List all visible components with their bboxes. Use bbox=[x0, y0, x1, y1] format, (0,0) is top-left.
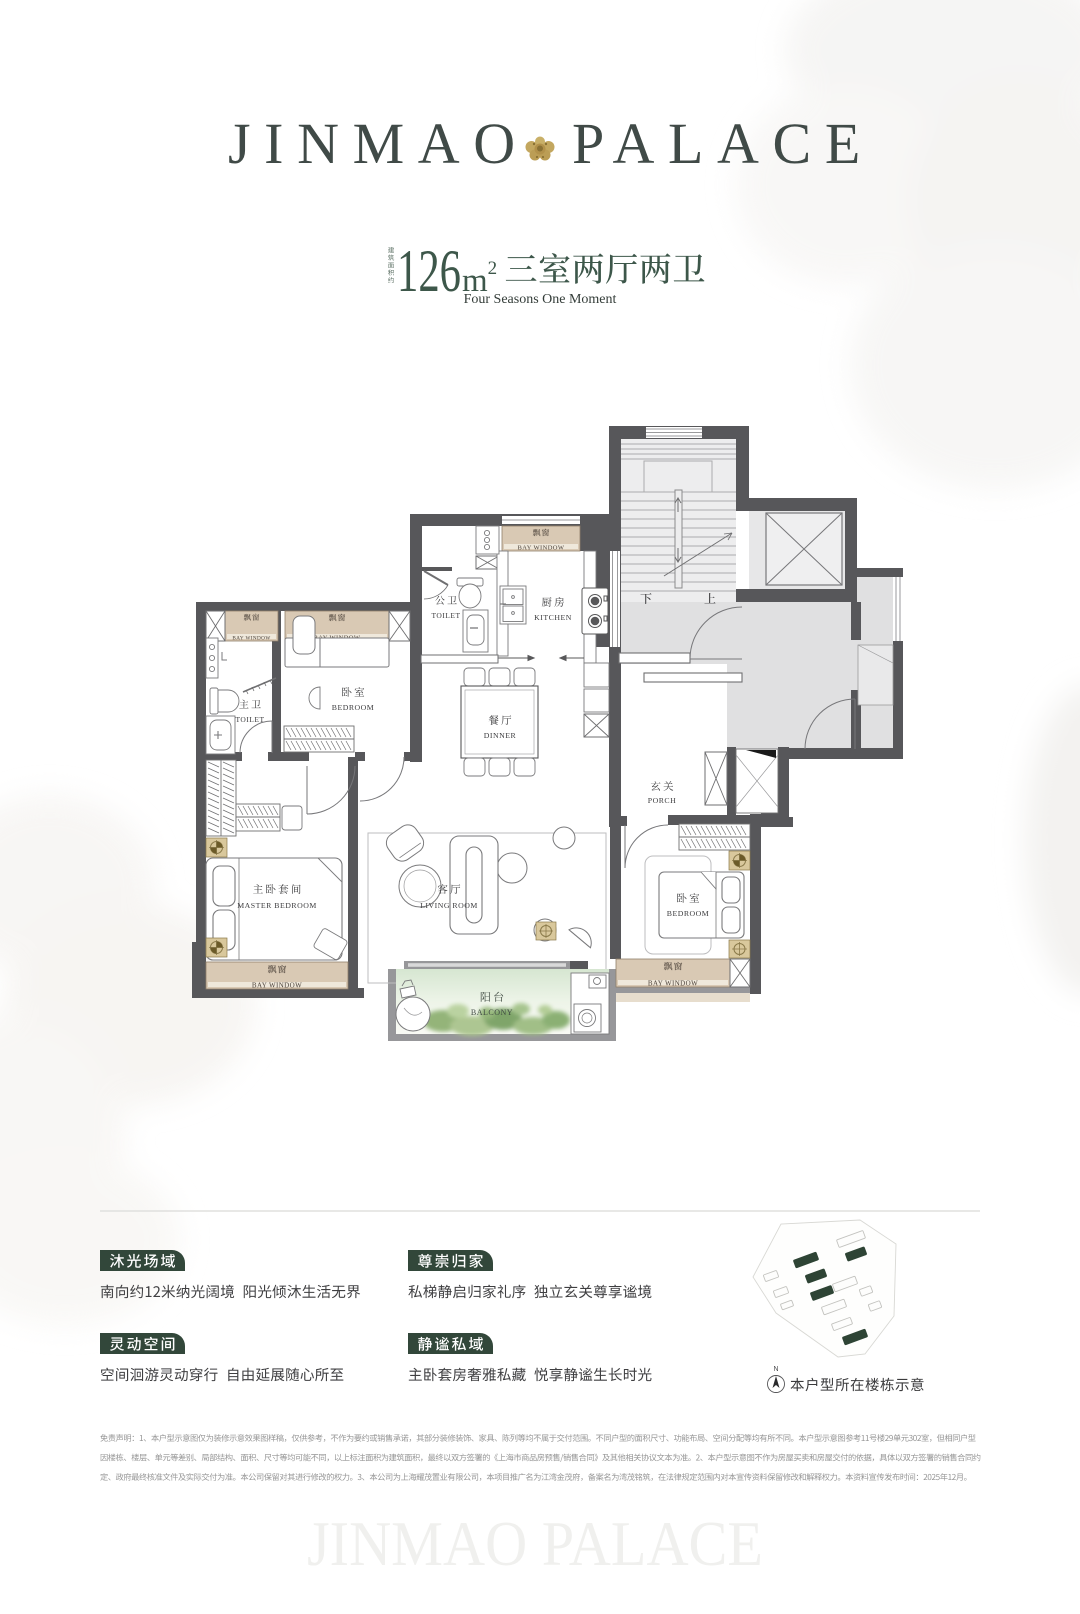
svg-text:BEDROOM: BEDROOM bbox=[667, 909, 710, 918]
svg-text:LIVING ROOM: LIVING ROOM bbox=[420, 901, 478, 910]
svg-text:BAY WINDOW: BAY WINDOW bbox=[252, 982, 302, 990]
svg-text:Four Seasons One Moment: Four Seasons One Moment bbox=[464, 292, 617, 307]
svg-text:BAY WINDOW: BAY WINDOW bbox=[648, 980, 698, 988]
svg-text:N: N bbox=[773, 1366, 778, 1373]
svg-text:KITCHEN: KITCHEN bbox=[534, 613, 572, 622]
svg-text:JINMAO PALACE: JINMAO PALACE bbox=[307, 1508, 763, 1579]
svg-text:MASTER BEDROOM: MASTER BEDROOM bbox=[237, 901, 317, 910]
svg-text:DINNER: DINNER bbox=[484, 731, 517, 740]
svg-text:JINMAO: JINMAO bbox=[228, 111, 529, 176]
svg-text:BEDROOM: BEDROOM bbox=[332, 703, 375, 712]
svg-text:TOILET: TOILET bbox=[235, 715, 264, 724]
svg-text:PALACE: PALACE bbox=[572, 111, 874, 176]
svg-text:BAY WINDOW: BAY WINDOW bbox=[232, 636, 270, 642]
svg-text:BAY WINDOW: BAY WINDOW bbox=[518, 545, 565, 552]
svg-text:TOILET: TOILET bbox=[431, 611, 460, 620]
svg-text:BALCONY: BALCONY bbox=[471, 1008, 513, 1017]
svg-text:PORCH: PORCH bbox=[648, 796, 677, 805]
